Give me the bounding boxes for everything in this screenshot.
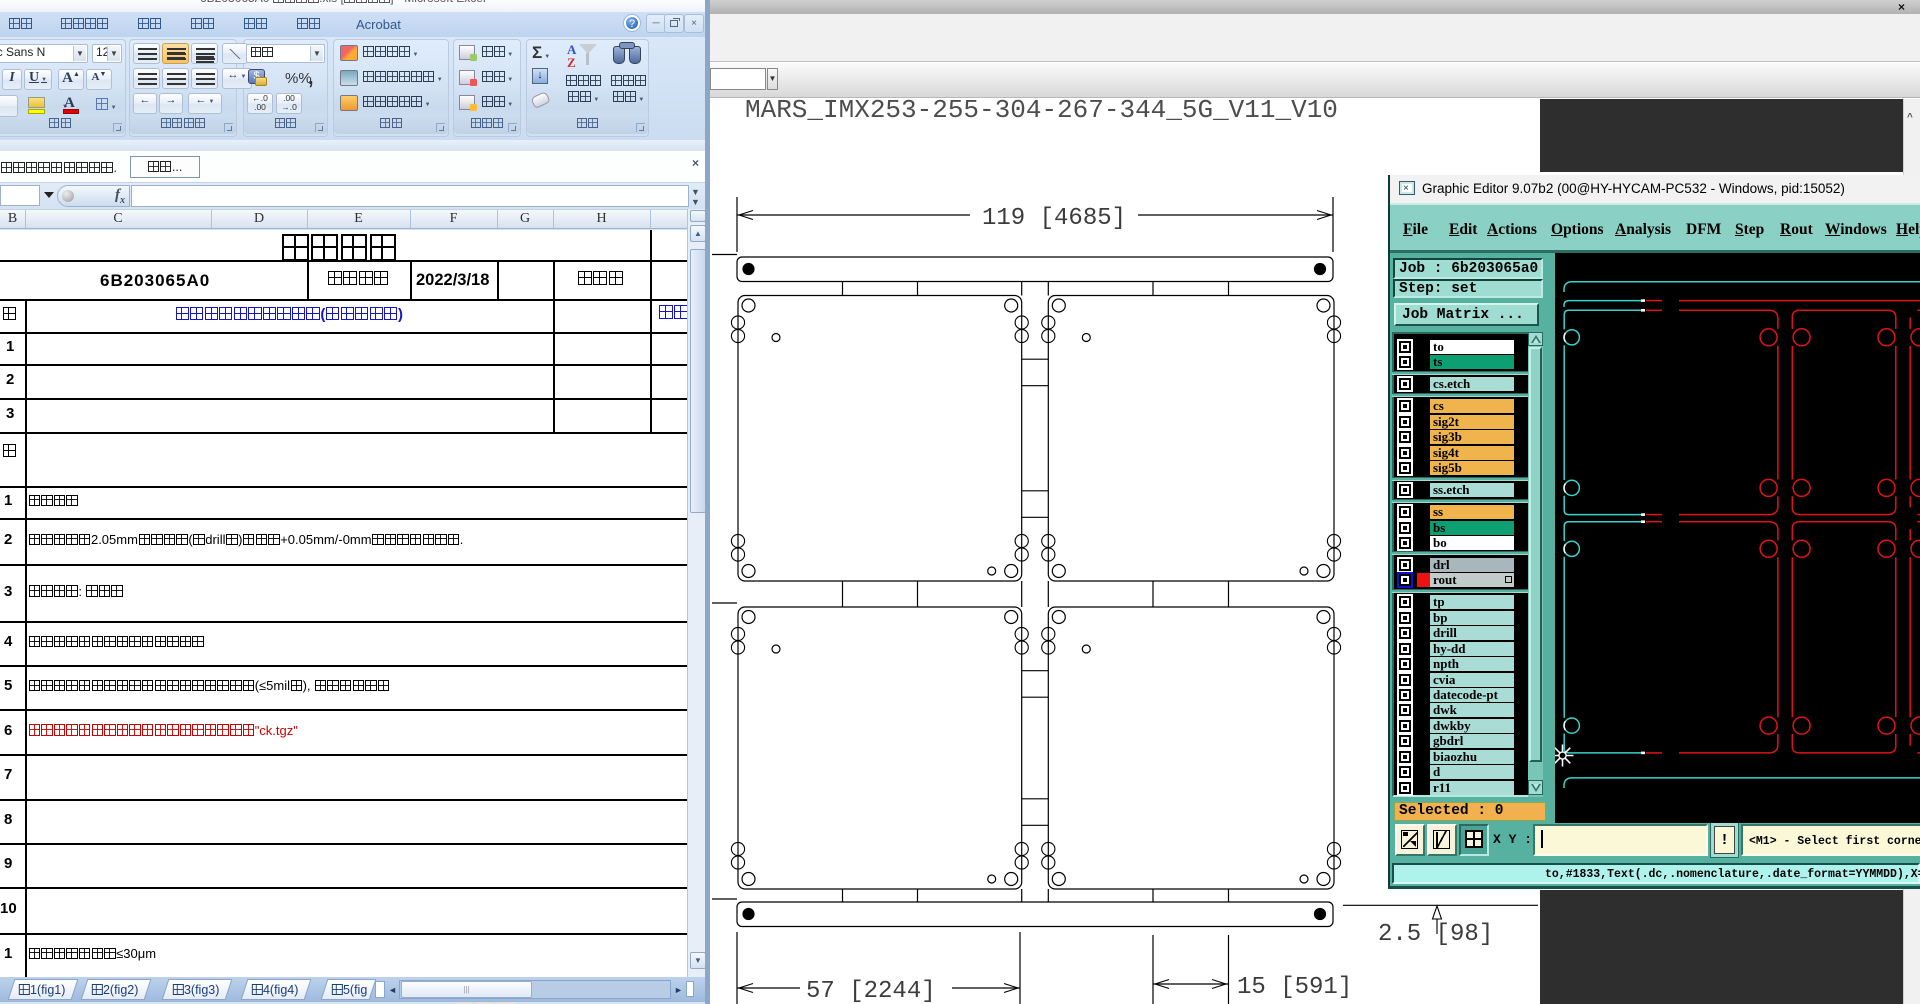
svg-text:57 [2244]: 57 [2244] xyxy=(806,978,936,1004)
svg-text:15 [591]: 15 [591] xyxy=(1237,974,1352,1001)
svg-text:119 [4685]: 119 [4685] xyxy=(982,205,1126,232)
svg-text:MARS_IMX253-255-304-267-344_5G: MARS_IMX253-255-304-267-344_5G_V11_V10 xyxy=(745,95,1338,125)
svg-text:2.5 [98]: 2.5 [98] xyxy=(1378,921,1493,948)
